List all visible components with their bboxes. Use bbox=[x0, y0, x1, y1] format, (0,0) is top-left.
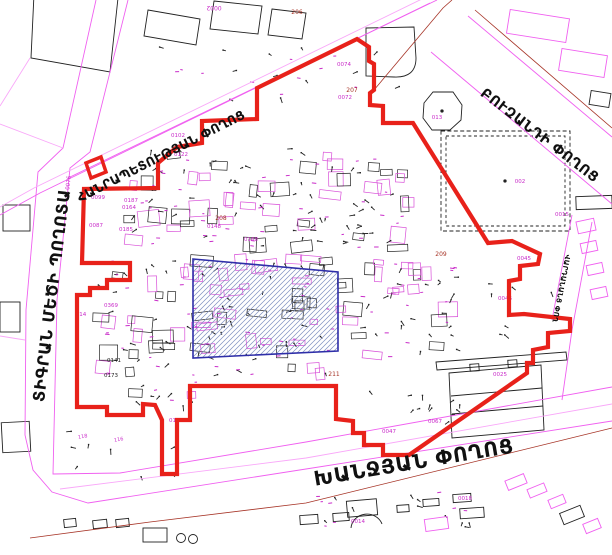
micro-code-mark bbox=[297, 78, 301, 79]
annotation-tick bbox=[311, 230, 316, 231]
annotation-dot bbox=[273, 192, 274, 193]
focus-zone-hatched bbox=[193, 259, 338, 358]
annotation-dot bbox=[293, 230, 294, 231]
micro-code-mark bbox=[258, 207, 262, 208]
parcel-code-label: 0018 bbox=[458, 496, 472, 502]
parcel-code-label: 0173 bbox=[104, 373, 118, 379]
annotation-dot bbox=[143, 385, 144, 386]
annotation-dot bbox=[365, 327, 366, 328]
annotation-dot bbox=[429, 404, 430, 405]
annotation-dot bbox=[273, 263, 274, 264]
annotation-dot bbox=[280, 97, 281, 98]
annotation-dot bbox=[504, 325, 505, 326]
micro-code-mark bbox=[454, 267, 457, 268]
annotation-dot bbox=[175, 260, 176, 261]
annotation-dot bbox=[138, 359, 139, 360]
micro-code-mark bbox=[418, 278, 421, 279]
micro-code-mark bbox=[225, 229, 229, 230]
annotation-dot bbox=[123, 349, 124, 350]
parcel-code-label: 206 bbox=[291, 9, 303, 16]
annotation-dot bbox=[397, 283, 398, 284]
annotation-dot bbox=[357, 224, 358, 225]
annotation-dot bbox=[361, 226, 362, 227]
annotation-dot bbox=[245, 165, 246, 166]
annotation-dot bbox=[295, 193, 296, 194]
micro-code-mark bbox=[262, 177, 266, 178]
parcel-code-label: 211 bbox=[328, 371, 340, 378]
annotation-dot bbox=[417, 499, 418, 500]
annotation-dot bbox=[319, 218, 320, 219]
annotation-dot bbox=[255, 358, 256, 359]
parcel-code-label: 208 bbox=[215, 215, 227, 222]
annotation-dot bbox=[334, 497, 335, 498]
annotation-dot bbox=[504, 334, 505, 335]
parcel-code-label: 0072 bbox=[338, 95, 352, 101]
annotation-dot bbox=[488, 283, 489, 284]
annotation-dot bbox=[410, 318, 411, 319]
annotation-dot bbox=[314, 225, 315, 226]
annotation-dot bbox=[130, 343, 131, 344]
annotation-dot bbox=[236, 213, 237, 214]
annotation-dot bbox=[368, 304, 369, 305]
annotation-dot bbox=[151, 396, 152, 397]
annotation-dot bbox=[453, 293, 454, 294]
annotation-dot bbox=[551, 292, 552, 293]
parcel-code-label: 0164 bbox=[122, 205, 136, 211]
annotation-dot bbox=[209, 162, 210, 163]
annotation-dot bbox=[465, 526, 466, 527]
annotation-dot bbox=[354, 214, 355, 215]
annotation-dot bbox=[98, 284, 99, 285]
annotation-dot bbox=[284, 263, 285, 264]
annotation-dot bbox=[123, 272, 124, 273]
annotation-dot bbox=[491, 293, 492, 294]
annotation-dot bbox=[362, 209, 363, 210]
annotation-dot bbox=[417, 505, 418, 506]
parcel-code-label: 013 bbox=[432, 115, 443, 121]
annotation-dot bbox=[411, 395, 412, 396]
annotation-dot bbox=[165, 341, 166, 342]
building-center-dot bbox=[504, 180, 506, 182]
annotation-dot bbox=[215, 160, 216, 161]
annotation-dot bbox=[263, 245, 264, 246]
annotation-dot bbox=[269, 53, 270, 54]
annotation-dot bbox=[387, 295, 388, 296]
annotation-dot bbox=[412, 409, 413, 410]
parcel-code-label: 0148 bbox=[207, 224, 221, 230]
annotation-dot bbox=[88, 444, 89, 445]
annotation-dot bbox=[459, 404, 460, 405]
annotation-dot bbox=[133, 216, 134, 217]
micro-code-mark bbox=[450, 268, 455, 269]
annotation-dot bbox=[234, 180, 235, 181]
annotation-dot bbox=[323, 264, 324, 265]
annotation-dot bbox=[456, 349, 457, 350]
parcel-code-label: 0074 bbox=[337, 62, 351, 68]
annotation-dot bbox=[160, 347, 161, 348]
annotation-dot bbox=[453, 400, 454, 401]
annotation-dot bbox=[420, 351, 421, 352]
annotation-dot bbox=[310, 229, 311, 230]
parcel-code-label: 0014 bbox=[351, 519, 365, 525]
annotation-dot bbox=[140, 476, 141, 477]
annotation-tick bbox=[183, 406, 184, 411]
annotation-dot bbox=[260, 205, 261, 206]
annotation-dot bbox=[346, 225, 347, 226]
annotation-dot bbox=[372, 232, 373, 233]
annotation-dot bbox=[110, 449, 111, 450]
annotation-dot bbox=[301, 47, 302, 48]
annotation-dot bbox=[159, 396, 160, 397]
parcel-code-label: 0015 bbox=[555, 212, 569, 218]
annotation-tick bbox=[360, 327, 365, 328]
annotation-dot bbox=[425, 284, 426, 285]
annotation-dot bbox=[362, 233, 363, 234]
annotation-dot bbox=[462, 522, 463, 523]
micro-code-mark bbox=[312, 183, 316, 184]
annotation-dot bbox=[301, 182, 302, 183]
annotation-dot bbox=[499, 334, 500, 335]
annotation-dot bbox=[343, 241, 344, 242]
micro-code-mark bbox=[250, 374, 253, 375]
annotation-dot bbox=[301, 152, 302, 153]
annotation-dot bbox=[458, 276, 459, 277]
annotation-dot bbox=[171, 393, 172, 394]
annotation-dot bbox=[77, 466, 78, 467]
annotation-dot bbox=[360, 172, 361, 173]
annotation-dot bbox=[187, 326, 188, 327]
annotation-dot bbox=[400, 268, 401, 269]
annotation-dot bbox=[311, 211, 312, 212]
annotation-dot bbox=[189, 197, 190, 198]
annotation-dot bbox=[364, 199, 365, 200]
annotation-dot bbox=[356, 71, 357, 72]
annotation-dot bbox=[168, 363, 169, 364]
annotation-dot bbox=[369, 391, 370, 392]
annotation-dot bbox=[325, 218, 326, 219]
annotation-dot bbox=[392, 193, 393, 194]
annotation-dot bbox=[136, 229, 137, 230]
annotation-dot bbox=[419, 408, 420, 409]
parcel-code-label: 0025 bbox=[493, 372, 507, 378]
annotation-dot bbox=[410, 495, 411, 496]
annotation-dot bbox=[305, 80, 306, 81]
annotation-dot bbox=[151, 150, 152, 151]
annotation-dot bbox=[431, 407, 432, 408]
parcel-code-label: 0067 bbox=[428, 419, 442, 425]
annotation-dot bbox=[371, 206, 372, 207]
annotation-dot bbox=[438, 280, 439, 281]
annotation-dot bbox=[291, 148, 292, 149]
annotation-dot bbox=[317, 240, 318, 241]
annotation-dot bbox=[116, 291, 117, 292]
annotation-dot bbox=[352, 507, 353, 508]
annotation-dot bbox=[242, 167, 243, 168]
annotation-dot bbox=[353, 168, 354, 169]
building-center-dot bbox=[441, 110, 443, 112]
annotation-dot bbox=[325, 373, 326, 374]
parcel-code-label: 0187 bbox=[124, 198, 138, 204]
annotation-dot bbox=[390, 240, 391, 241]
annotation-dot bbox=[450, 326, 451, 327]
annotation-dot bbox=[71, 447, 72, 448]
annotation-dot bbox=[422, 395, 423, 396]
annotation-dot bbox=[158, 211, 159, 212]
annotation-dot bbox=[401, 321, 402, 322]
annotation-dot bbox=[182, 405, 183, 406]
parcel-code-label: 0002 bbox=[206, 4, 221, 11]
annotation-dot bbox=[217, 374, 218, 375]
annotation-dot bbox=[301, 265, 302, 266]
annotation-dot bbox=[375, 333, 376, 334]
annotation-dot bbox=[222, 49, 223, 50]
annotation-dot bbox=[442, 313, 443, 314]
annotation-dot bbox=[156, 319, 157, 320]
annotation-dot bbox=[468, 522, 469, 523]
annotation-dot bbox=[165, 271, 166, 272]
annotation-dot bbox=[399, 86, 400, 87]
annotation-dot bbox=[448, 421, 449, 422]
parcel-code-label: 002 bbox=[515, 179, 526, 185]
annotation-dot bbox=[310, 194, 311, 195]
annotation-dot bbox=[332, 166, 333, 167]
micro-code-mark bbox=[250, 246, 254, 247]
annotation-dot bbox=[324, 520, 325, 521]
annotation-dot bbox=[512, 287, 513, 288]
annotation-dot bbox=[456, 409, 457, 410]
annotation-dot bbox=[230, 179, 231, 180]
annotation-dot bbox=[233, 182, 234, 183]
annotation-dot bbox=[159, 46, 160, 47]
parcel-code-label: 0369 bbox=[104, 303, 118, 309]
annotation-dot bbox=[353, 203, 354, 204]
cadastral-map: 0002206007420700720130020015209004500462… bbox=[0, 0, 612, 555]
annotation-dot bbox=[376, 51, 377, 52]
annotation-dot bbox=[236, 70, 237, 71]
annotation-dot bbox=[146, 269, 147, 270]
annotation-dot bbox=[151, 199, 152, 200]
parcel-code-label: 207 bbox=[346, 87, 358, 94]
annotation-dot bbox=[429, 334, 430, 335]
annotation-dot bbox=[450, 299, 451, 300]
annotation-dot bbox=[184, 169, 185, 170]
parcel-code-label: 0087 bbox=[89, 223, 103, 229]
annotation-dot bbox=[450, 334, 451, 335]
micro-code-mark bbox=[154, 390, 157, 391]
annotation-dot bbox=[439, 283, 440, 284]
annotation-dot bbox=[302, 237, 303, 238]
micro-code-mark bbox=[156, 366, 160, 367]
annotation-dot bbox=[176, 214, 177, 215]
parcel-code-label: 209 bbox=[435, 251, 447, 258]
annotation-dot bbox=[136, 401, 137, 402]
annotation-dot bbox=[112, 311, 113, 312]
annotation-dot bbox=[151, 264, 152, 265]
annotation-dot bbox=[401, 325, 402, 326]
micro-code-mark bbox=[437, 492, 441, 493]
parcel-code-label: 0045 bbox=[517, 256, 531, 262]
parcel-code-label: 0047 bbox=[382, 429, 396, 435]
parcel-code-label: 0141 bbox=[107, 358, 121, 364]
parcel-code-label: 0185 bbox=[119, 227, 133, 233]
micro-code-mark bbox=[328, 503, 332, 504]
parcel-code-label: 0168 bbox=[244, 237, 258, 243]
annotation-dot bbox=[71, 431, 72, 432]
annotation-dot bbox=[257, 194, 258, 195]
